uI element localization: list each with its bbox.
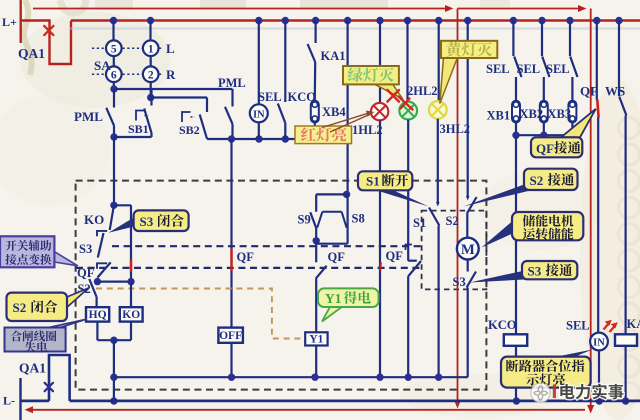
svg-text:SB1: SB1 [128,122,149,136]
svg-text:L: L [166,41,175,56]
svg-text:S2: S2 [13,300,27,315]
svg-text:S2: S2 [446,214,459,228]
svg-text:QF: QF [237,250,255,264]
svg-text:QA1: QA1 [19,361,46,376]
svg-text:PML: PML [218,76,246,90]
svg-text:PML: PML [74,109,103,124]
svg-text:S2: S2 [530,173,544,188]
svg-text:XB4: XB4 [322,105,346,119]
svg-text:6: 6 [111,70,117,82]
svg-text:S9: S9 [298,213,311,227]
svg-text:SEL: SEL [517,62,541,76]
svg-text:R: R [166,67,176,82]
svg-text:S3: S3 [528,263,542,278]
svg-text:IN: IN [593,338,605,349]
svg-text:XB2: XB2 [520,107,544,121]
svg-text:SEL: SEL [486,62,510,76]
svg-text:KCO: KCO [488,318,517,332]
svg-text:XB3: XB3 [548,107,572,121]
svg-text:2: 2 [148,70,154,82]
svg-text:KA1: KA1 [321,49,346,63]
svg-text:SEL: SEL [258,90,282,104]
svg-text:QF: QF [77,266,95,280]
svg-text:L-: L- [3,394,15,408]
svg-text:Y1: Y1 [309,333,323,345]
svg-text:S8: S8 [352,212,365,226]
svg-text:SEL: SEL [546,62,570,76]
svg-text:M: M [461,242,475,258]
svg-text:S3: S3 [453,275,466,289]
svg-text:QF: QF [328,250,346,264]
svg-text:SB2: SB2 [179,123,200,137]
svg-text:WS: WS [605,84,625,99]
svg-text:IN: IN [253,109,265,120]
svg-text:QF: QF [536,141,554,156]
svg-text:S3: S3 [140,214,154,229]
svg-text:KO: KO [84,212,104,227]
svg-text:QF: QF [386,249,404,263]
svg-text:S1: S1 [413,216,426,230]
svg-text:S3: S3 [79,242,92,256]
svg-text:SA: SA [94,58,111,73]
svg-text:1: 1 [148,44,154,56]
svg-text:QF: QF [580,84,598,99]
svg-text:KA: KA [627,317,640,331]
svg-text:Y1: Y1 [325,291,342,306]
svg-text:XB1: XB1 [487,109,511,123]
svg-text:KO: KO [122,309,140,321]
svg-text:L+: L+ [2,15,17,29]
svg-text:2HL2: 2HL2 [407,84,438,98]
svg-text:OFF: OFF [219,330,242,342]
svg-text:S1: S1 [366,174,380,189]
svg-text:HQ: HQ [89,309,107,321]
svg-text:3HL2: 3HL2 [440,122,471,136]
svg-text:QA1: QA1 [18,46,45,61]
svg-text:5: 5 [111,44,117,56]
svg-text:SEL: SEL [566,319,590,333]
svg-text:1HL2: 1HL2 [352,123,383,137]
